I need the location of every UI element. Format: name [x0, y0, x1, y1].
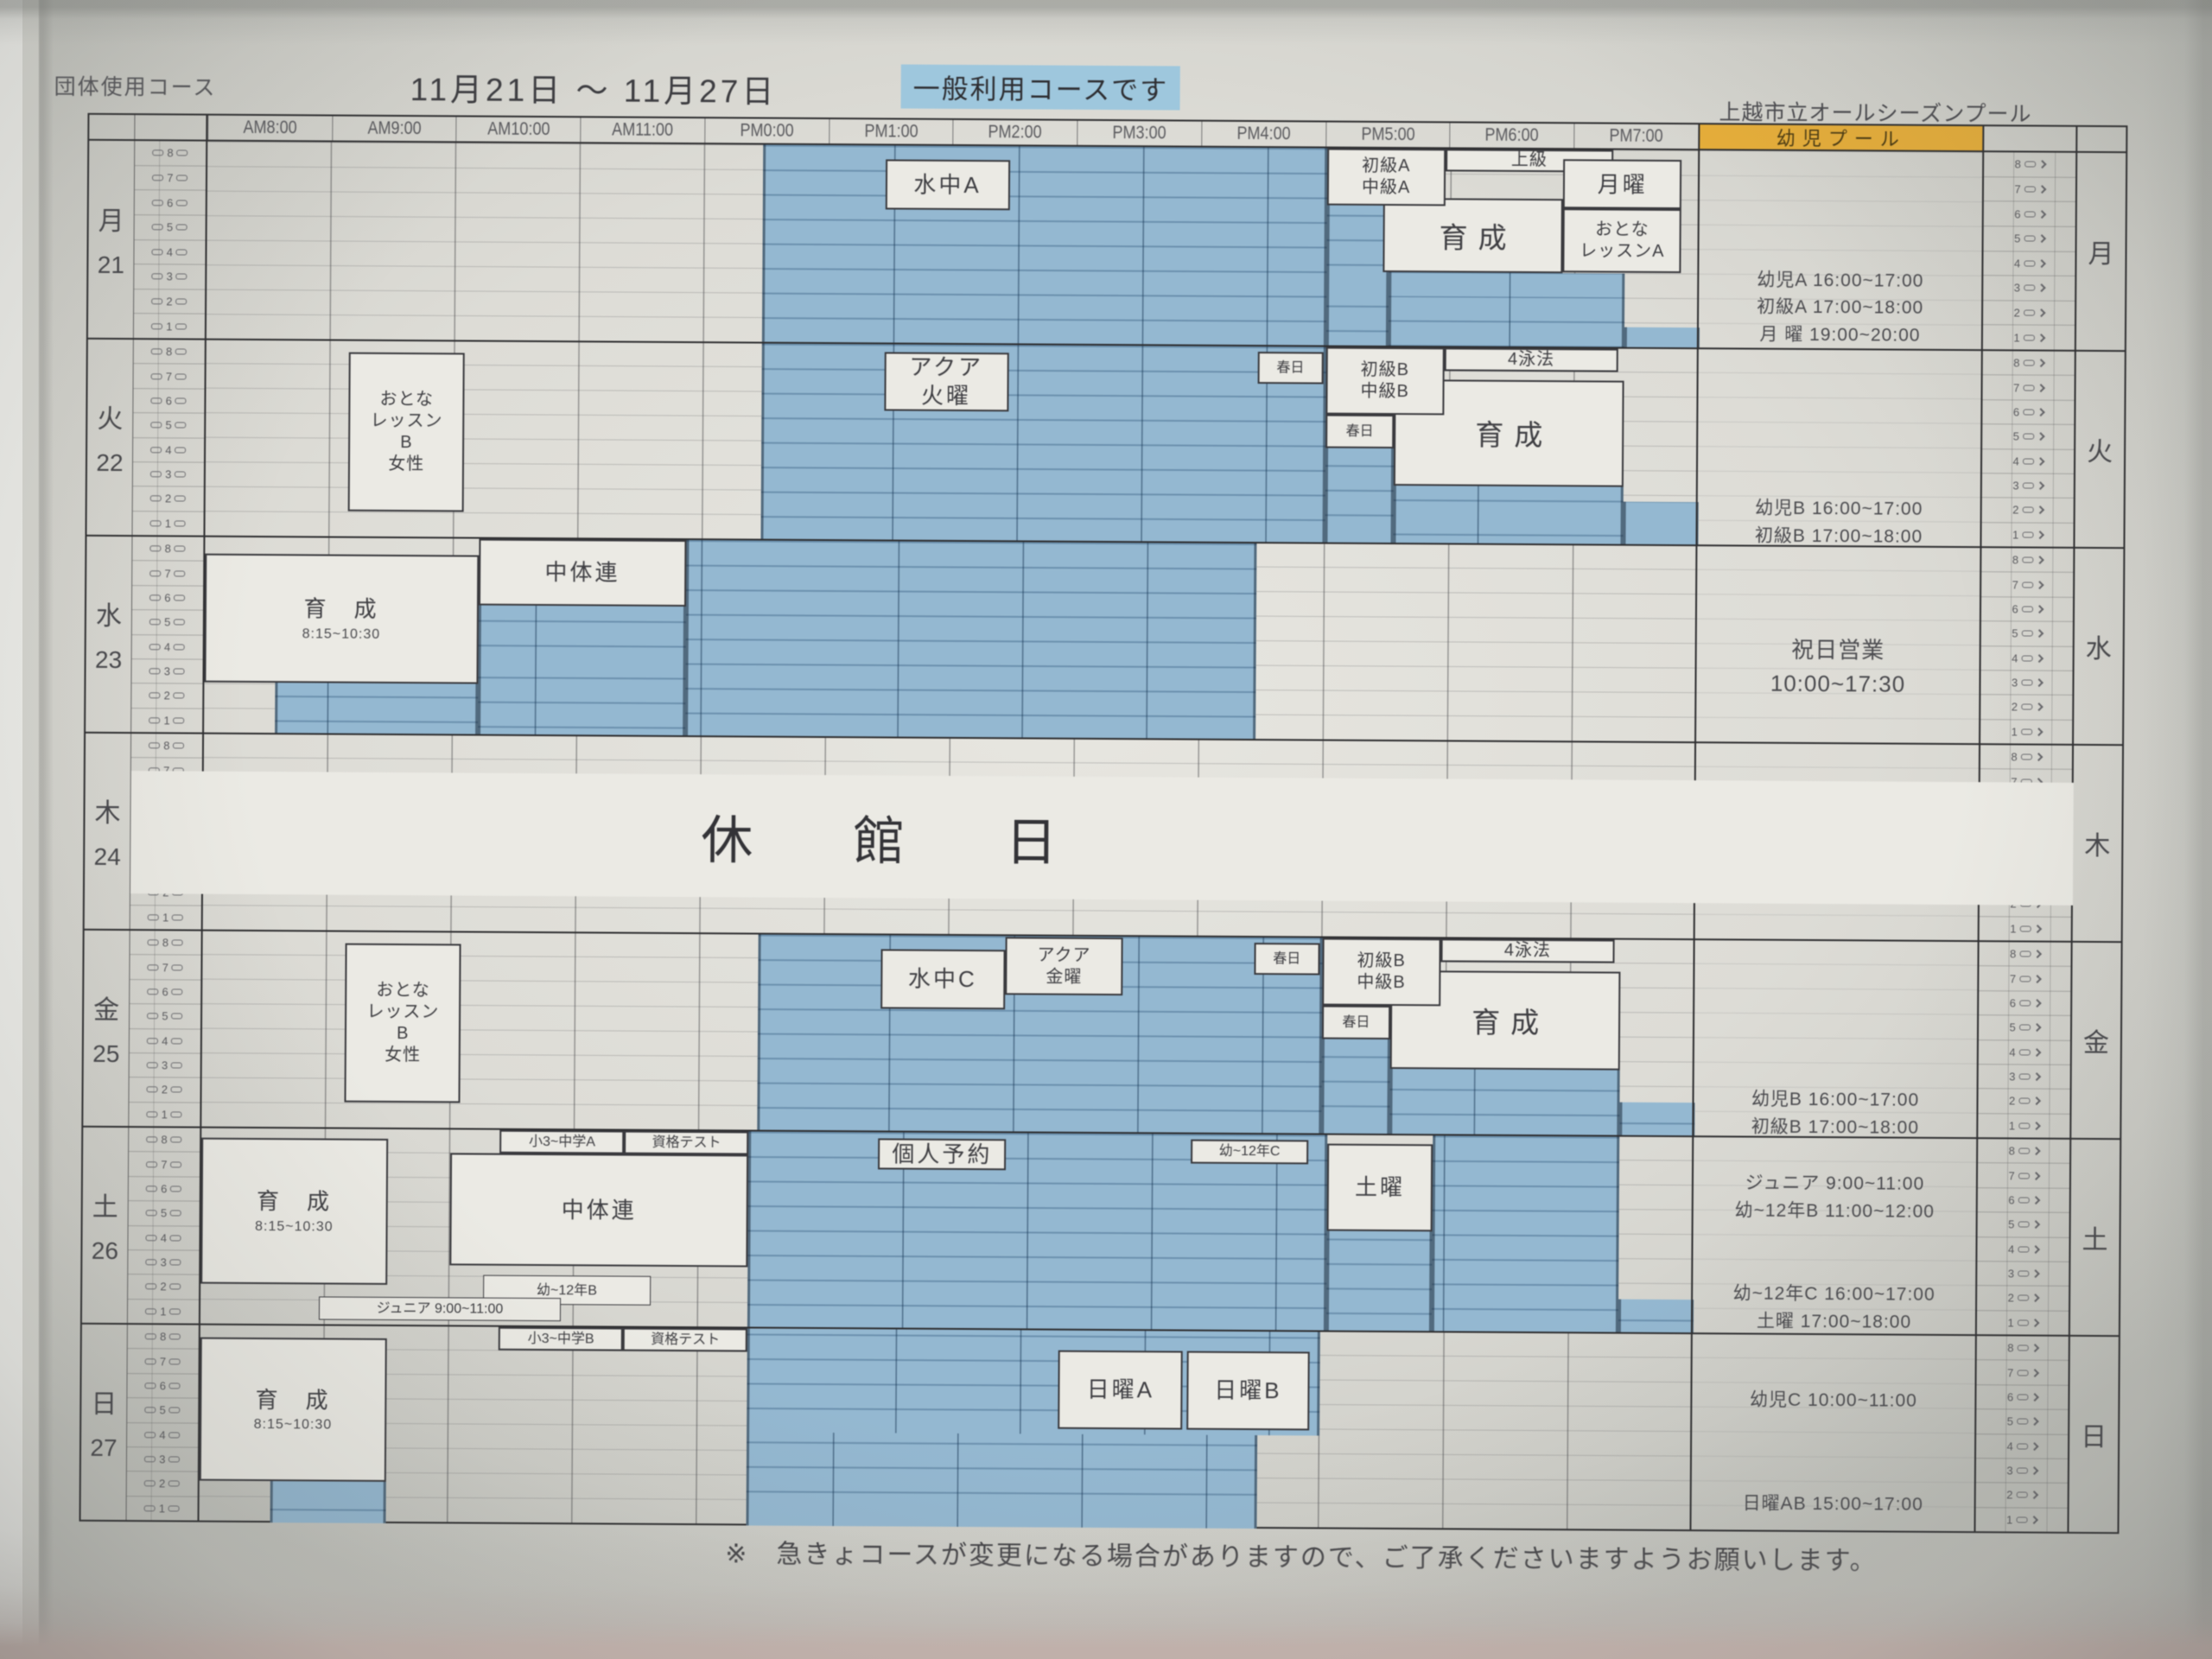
course-block: 初級B中級B [1322, 938, 1440, 1007]
lane-row: 6 [1981, 597, 2073, 622]
lane-number: 5 [2010, 1022, 2016, 1033]
chevron-icon [2037, 384, 2045, 392]
lane-row: 4 [134, 240, 205, 265]
lane-rope-icon [172, 940, 183, 946]
lane-number: 6 [2013, 406, 2019, 417]
chevron-icon [2031, 1172, 2040, 1180]
lane-rope-icon [2016, 1516, 2027, 1522]
chevron-icon [2031, 1393, 2039, 1402]
lane-row: 6 [129, 1177, 200, 1202]
lane-number: 8 [166, 346, 172, 358]
lane-rope-icon [168, 1456, 180, 1462]
chevron-icon [2031, 1319, 2039, 1327]
course-block: 春日 [1325, 415, 1394, 448]
course-label: 4泳法 [1504, 940, 1551, 962]
chevron-icon [2030, 1442, 2038, 1451]
lane-number: 6 [162, 986, 168, 997]
lane-rope-icon [2016, 1492, 2027, 1498]
course-block: アクア金曜 [1005, 938, 1123, 996]
course-label: おとな [376, 980, 430, 1001]
time-column-header: PM6:00 [1450, 123, 1574, 148]
lane-rope-icon [2018, 1074, 2030, 1080]
chevron-icon [2037, 408, 2045, 416]
course-time: 8:15~10:30 [255, 1219, 334, 1236]
day-date: 21 [98, 251, 124, 279]
day-label-left: 日27 [81, 1325, 128, 1520]
lane-rope-icon [2021, 655, 2032, 661]
time-label: PM3:00 [1113, 123, 1166, 143]
lane-rope-icon [169, 1308, 181, 1314]
lane-rope-icon [2024, 285, 2035, 291]
lane-row: 4 [132, 635, 203, 660]
lane-row: 3 [1981, 671, 2073, 696]
course-block: おとなレッスンA [1563, 209, 1681, 274]
kids-pool-text: 幼児C 10:00~11:00 [1692, 1386, 1975, 1414]
footer-note: ※ 急きょコースが変更になる場合がありますので、ご了承くださいますようお願いしま… [725, 1532, 1878, 1577]
lane-number: 1 [2009, 1120, 2015, 1131]
chevron-icon [2031, 1417, 2039, 1426]
lane-rope-icon [149, 742, 160, 748]
chevron-icon [2035, 678, 2044, 687]
lane-rope-icon [173, 743, 184, 749]
chevron-icon [2031, 1369, 2039, 1377]
course-block: 水中C [880, 949, 1005, 1010]
lane-rope-icon [175, 546, 186, 552]
time-label: PM6:00 [1485, 125, 1539, 146]
course-label: 中体連 [544, 558, 620, 587]
time-label: PM4:00 [1236, 124, 1290, 144]
time-column-header: PM4:00 [1201, 122, 1325, 147]
chevron-icon [2037, 234, 2046, 243]
course-label: 幼~12年B [537, 1282, 597, 1300]
chevron-icon [2033, 999, 2042, 1007]
lane-number: 6 [2012, 603, 2018, 614]
course-label: アクア [909, 353, 983, 382]
lane-number: 8 [2007, 1343, 2013, 1354]
lane-row: 1 [132, 512, 203, 536]
course-block: 土曜 [1327, 1144, 1433, 1232]
lane-rope-icon [146, 1235, 157, 1241]
lane-row: 3 [1982, 474, 2074, 499]
lane-occupied-region [1321, 1039, 1390, 1135]
course-block: アクア火曜 [884, 352, 1008, 411]
lane-rope-icon [172, 1014, 183, 1020]
lane-row: 3 [133, 462, 204, 487]
course-label: 女性 [385, 1045, 421, 1066]
kids-pool-column: 幼児C 10:00~11:00日曜AB 15:00~17:00 [1689, 1334, 1975, 1531]
day-label-right: 日 [2069, 1337, 2119, 1532]
chevron-icon [2033, 975, 2042, 983]
lane-row: 4 [1984, 251, 2075, 276]
day-row: 水2387654321育 成8:15~10:30中体連祝日営業10:00~17:… [86, 535, 2123, 744]
day-label-left: 月21 [88, 141, 135, 338]
lane-number-column-left: 87654321 [134, 141, 207, 339]
lane-rope-icon [176, 225, 188, 231]
lane-number: 6 [167, 197, 173, 208]
chevron-icon [2031, 1344, 2039, 1352]
lane-number-column-left: 87654321 [129, 931, 202, 1127]
lane-rope-icon [2019, 951, 2031, 957]
lane-number: 3 [166, 271, 172, 283]
lane-number-column-right: 87654321 [1981, 152, 2077, 350]
kids-pool-text: 幼~12年C 16:00~17:00 [1693, 1280, 1976, 1308]
lane-number: 6 [2014, 208, 2020, 219]
lane-row: 2 [1977, 1286, 2069, 1311]
lane-occupied-region [1624, 501, 1699, 546]
lane-number: 1 [2006, 1514, 2012, 1525]
chevron-icon [2032, 1023, 2041, 1032]
lane-rope-icon [2024, 162, 2036, 168]
lane-occupied-region [1432, 1135, 1619, 1333]
time-column-header: AM10:00 [456, 117, 581, 142]
kids-pool-entry: 幼児C 10:00~11:00 [1692, 1386, 1975, 1414]
course-block: 中体連 [449, 1153, 748, 1267]
time-label: PM7:00 [1610, 126, 1663, 147]
chevron-icon [2037, 432, 2045, 441]
lane-rope-icon [170, 1235, 181, 1241]
document-title: 団体使用コース [54, 70, 217, 102]
chevron-icon [2033, 950, 2042, 958]
lane-number: 8 [2010, 949, 2016, 960]
course-label: 春日 [1342, 1014, 1370, 1031]
course-block: 個人予約 [878, 1139, 1007, 1171]
lane-rope-icon [168, 1505, 180, 1511]
day-label-left: 金25 [83, 931, 130, 1126]
lane-occupied-region [1393, 486, 1624, 546]
chevron-icon [2031, 1245, 2040, 1254]
lane-rope-icon [174, 693, 185, 699]
lane-row: 8 [134, 340, 205, 365]
lane-rope-icon [175, 447, 187, 453]
lane-rope-icon [147, 1014, 158, 1020]
lane-rope-icon [151, 323, 162, 329]
lane-number: 4 [2012, 652, 2018, 664]
lane-rope-icon [2017, 1394, 2028, 1400]
lane-row: 5 [128, 1201, 199, 1226]
lane-occupied-region [1618, 1300, 1694, 1334]
chevron-icon [2037, 160, 2046, 168]
lane-row: 8 [1984, 152, 2075, 177]
course-block: 水中A [885, 159, 1009, 210]
lane-rope-icon [144, 1505, 156, 1511]
lane-row: 7 [1981, 573, 2073, 598]
chevron-icon [2035, 654, 2044, 663]
lane-rope-icon [2018, 1271, 2029, 1277]
lane-number: 8 [2011, 752, 2017, 763]
lane-rope-icon [2017, 1419, 2028, 1425]
chevron-icon [2032, 1048, 2041, 1057]
kids-pool-column: 幼児B 16:00~17:00初級B 17:00~18:00 [1695, 349, 1981, 546]
lane-rope-icon [176, 298, 188, 304]
lane-row: 5 [127, 1398, 198, 1423]
lane-rope-icon [2018, 1122, 2030, 1128]
lane-number: 7 [2007, 1367, 2013, 1378]
lane-rope-icon [2024, 310, 2035, 316]
lane-rope-icon [147, 1038, 158, 1044]
course-block: 資格テスト [623, 1328, 747, 1352]
course-label: 幼~12年C [1219, 1143, 1281, 1160]
lane-rope-icon [152, 224, 163, 230]
lane-number: 5 [2012, 628, 2018, 639]
kids-pool-column: ジュニア 9:00~11:00幼~12年B 11:00~12:00幼~12年C … [1691, 1137, 1977, 1334]
lane-rope-icon [149, 594, 161, 601]
chevron-icon [2037, 359, 2045, 367]
lane-number: 5 [162, 1011, 168, 1022]
lane-rope-icon [152, 175, 163, 181]
lane-rope-icon [151, 397, 162, 404]
lane-number: 8 [2012, 555, 2018, 566]
lane-occupied-region [1624, 327, 1700, 347]
lane-rope-icon [2024, 211, 2036, 217]
lane-number: 5 [2014, 233, 2020, 245]
paper-sheet: 団体使用コース 11月21日 ～ 11月27日 一般利用コースです 上越市立オー… [0, 0, 2212, 1659]
lane-number: 6 [166, 395, 172, 406]
lane-row: 1 [1982, 523, 2074, 547]
lane-rope-icon [174, 594, 185, 601]
lane-rope-icon [147, 988, 158, 995]
lane-row: 3 [1983, 276, 2075, 301]
chevron-icon [2033, 925, 2042, 933]
course-label: 春日 [1276, 359, 1304, 376]
lane-number: 4 [2013, 455, 2019, 467]
chevron-icon [2031, 1147, 2040, 1155]
lane-number: 2 [162, 1084, 168, 1096]
lane-rope-icon [168, 1481, 180, 1487]
lane-row: 1 [126, 1497, 197, 1521]
lane-rope-icon [151, 298, 162, 304]
lane-occupied-region [1389, 271, 1625, 346]
kids-pool-entry: 幼~12年C 16:00~17:00土曜 17:00~18:00 [1693, 1280, 1976, 1336]
lane-rope-icon [175, 496, 186, 502]
course-label: 中級B [1357, 972, 1405, 994]
lane-number: 2 [2008, 1293, 2014, 1304]
time-column-header: PM5:00 [1325, 123, 1450, 148]
lane-number: 1 [2010, 923, 2016, 934]
lane-number-column-left: 87654321 [126, 1325, 200, 1521]
lane-rope-icon [2023, 483, 2034, 489]
lane-row: 6 [130, 980, 200, 1005]
lane-row: 3 [1979, 1065, 2070, 1090]
course-label: 月曜 [1598, 170, 1648, 199]
lane-rope-icon [145, 1284, 156, 1290]
day-kanji: 月 [2088, 232, 2113, 270]
course-label: 春日 [1273, 950, 1300, 967]
header-spacer-lane-right [1982, 126, 2077, 151]
lane-row: 3 [134, 264, 205, 289]
lane-number: 7 [2010, 973, 2016, 984]
chevron-icon [2032, 1072, 2041, 1081]
lane-number: 2 [2014, 307, 2020, 318]
kids-pool-text: 10:00~17:30 [1696, 666, 1980, 702]
lane-number-column-right: 87654321 [1979, 548, 2075, 744]
lane-rope-icon [175, 570, 186, 576]
lane-rope-icon [2019, 1000, 2031, 1006]
course-label: レッスンA [1580, 241, 1664, 264]
lane-number: 1 [160, 1306, 166, 1317]
lane-row: 4 [128, 1226, 199, 1251]
lane-rope-icon [175, 520, 186, 526]
lane-rope-icon [170, 1161, 181, 1167]
lane-rope-icon [176, 274, 188, 280]
time-grid: 育 成8:15~10:30小3~中学B資格テスト日曜A日曜B [199, 1325, 1690, 1530]
lane-number: 1 [166, 321, 172, 332]
time-grid: おとなレッスンB女性アクア火曜育成春日初級B中級B4泳法春日 [205, 340, 1696, 545]
course-block: おとなレッスンB女性 [345, 943, 461, 1103]
course-label: B [400, 432, 412, 454]
course-label: 春日 [1346, 423, 1374, 440]
course-label: 上級 [1511, 149, 1548, 171]
course-label: 中級A [1362, 177, 1410, 199]
lane-rope-icon [170, 1259, 181, 1265]
lane-occupied-region [1325, 448, 1394, 544]
lane-number: 7 [2008, 1170, 2014, 1181]
lane-number: 3 [2006, 1465, 2012, 1476]
lane-rope-icon [150, 447, 162, 453]
photo-of-schedule: 団体使用コース 11月21日 ～ 11月27日 一般利用コースです 上越市立オー… [0, 0, 2212, 1659]
lane-row: 8 [1980, 942, 2071, 967]
lane-rope-icon [147, 1111, 158, 1117]
lane-number: 8 [163, 741, 169, 752]
course-block: 日曜A [1058, 1350, 1184, 1429]
day-kanji: 火 [2087, 430, 2113, 468]
course-label: 初級A [1362, 156, 1410, 177]
time-column-header: AM11:00 [580, 118, 704, 143]
lane-rope-icon [2018, 1295, 2029, 1301]
lane-number: 2 [166, 296, 172, 307]
lane-row: 7 [1977, 1361, 2069, 1386]
time-label: AM8:00 [243, 118, 296, 138]
chevron-icon [2031, 1220, 2040, 1229]
day-label-right: 木 [2073, 746, 2122, 941]
course-label: 4泳法 [1508, 349, 1554, 371]
lane-rope-icon [169, 1358, 181, 1364]
lane-number: 1 [2012, 529, 2018, 540]
lane-rope-icon [171, 1087, 182, 1093]
lane-row: 8 [135, 141, 206, 166]
course-label: 金曜 [1046, 966, 1082, 988]
course-label: おとな [1595, 219, 1649, 241]
lane-number: 6 [161, 1183, 167, 1194]
lane-number: 6 [2007, 1391, 2013, 1402]
lane-number: 1 [162, 912, 168, 923]
lane-number: 3 [162, 1059, 168, 1071]
lane-rope-icon [151, 373, 162, 379]
lane-number: 7 [161, 1159, 167, 1170]
lane-row: 7 [1980, 967, 2071, 992]
general-use-highlight: 一般利用コースです [901, 65, 1181, 111]
lane-number-column-right: 87654321 [1980, 351, 2076, 547]
lane-rope-icon [145, 1308, 156, 1314]
lane-rope-icon [152, 200, 163, 206]
lane-row: 5 [1981, 621, 2073, 646]
lane-rope-icon [176, 175, 188, 181]
lane-rope-icon [171, 1038, 182, 1044]
time-label: PM1:00 [864, 121, 918, 142]
lane-row: 5 [132, 610, 203, 635]
lane-row: 8 [131, 734, 202, 759]
lane-rope-icon [169, 1334, 181, 1340]
lane-number: 3 [164, 665, 170, 677]
lane-rope-icon [150, 471, 162, 477]
lane-occupied-region [747, 1432, 1257, 1529]
lane-rope-icon [2023, 434, 2034, 440]
day-kanji: 土 [92, 1185, 118, 1224]
lane-rope-icon [2018, 1148, 2030, 1154]
lane-number: 3 [2014, 283, 2020, 294]
lane-rope-icon [2019, 976, 2031, 982]
lane-rope-icon [152, 249, 163, 255]
lane-number: 5 [159, 1405, 165, 1416]
course-label: 資格テスト [651, 1332, 720, 1349]
lane-rope-icon [172, 914, 183, 920]
lane-rope-icon [171, 1111, 182, 1117]
lane-number: 5 [164, 617, 170, 628]
lane-rope-icon [144, 1481, 156, 1487]
lane-row: 8 [1978, 1139, 2069, 1164]
kids-pool-text: 初級A 17:00~18:00 [1699, 294, 1982, 322]
closed-day-band: 休 館 日 [130, 771, 2074, 906]
chevron-icon [2036, 481, 2044, 490]
lane-rope-icon [146, 1161, 157, 1167]
lane-rope-icon [2022, 606, 2033, 612]
lane-rope-icon [2018, 1222, 2029, 1228]
chevron-icon [2032, 1097, 2041, 1106]
course-block: 育 成8:15~10:30 [204, 553, 479, 684]
lane-row: 6 [135, 190, 206, 215]
lane-number: 8 [162, 938, 168, 949]
lane-number: 7 [2013, 382, 2019, 393]
date-range: 11月21日 ～ 11月27日 [410, 63, 777, 112]
lane-row: 4 [1981, 646, 2073, 671]
day-label-right: 火 [2075, 352, 2125, 547]
lane-rope-icon [2017, 1468, 2028, 1474]
day-date: 26 [92, 1237, 118, 1265]
lane-number: 2 [160, 1281, 166, 1293]
lane-rope-icon [146, 1185, 157, 1192]
kids-pool-text: ジュニア 9:00~11:00 [1694, 1169, 1977, 1198]
course-time: 8:15~10:30 [254, 1417, 333, 1433]
lane-rope-icon [2018, 1246, 2029, 1252]
course-label: ジュニア 9:00~11:00 [377, 1300, 504, 1318]
kids-pool-entry: 日曜AB 15:00~17:00 [1691, 1490, 1974, 1518]
course-label: 個人予約 [892, 1140, 992, 1168]
lane-rope-icon [149, 693, 161, 699]
day-label-left: 土26 [82, 1128, 129, 1323]
kids-pool-text: 幼児B 16:00~17:00 [1694, 1085, 1977, 1114]
lane-row: 7 [132, 561, 203, 586]
course-label: レッスン [371, 410, 443, 433]
day-kanji: 水 [96, 594, 122, 632]
lane-occupied-region [762, 145, 1327, 346]
kids-pool-header: 幼児プール [1698, 124, 1983, 150]
lane-occupied-region [1326, 1231, 1433, 1333]
time-label: AM11:00 [612, 119, 673, 140]
lane-rope-icon [150, 520, 162, 526]
chevron-icon [2031, 1196, 2040, 1205]
course-label: 土曜 [1355, 1173, 1405, 1202]
lane-rope-icon [177, 150, 188, 156]
lane-row: 2 [133, 486, 204, 512]
chevron-icon [2036, 531, 2044, 539]
day-label-right: 土 [2070, 1140, 2120, 1335]
day-kanji: 水 [2086, 627, 2112, 665]
lane-number: 1 [2013, 332, 2019, 343]
lane-rope-icon [2018, 1173, 2030, 1179]
lane-rope-icon [151, 274, 162, 280]
lane-number: 2 [164, 690, 170, 702]
lane-row: 1 [1977, 1311, 2069, 1335]
course-time: 8:15~10:30 [302, 626, 381, 643]
